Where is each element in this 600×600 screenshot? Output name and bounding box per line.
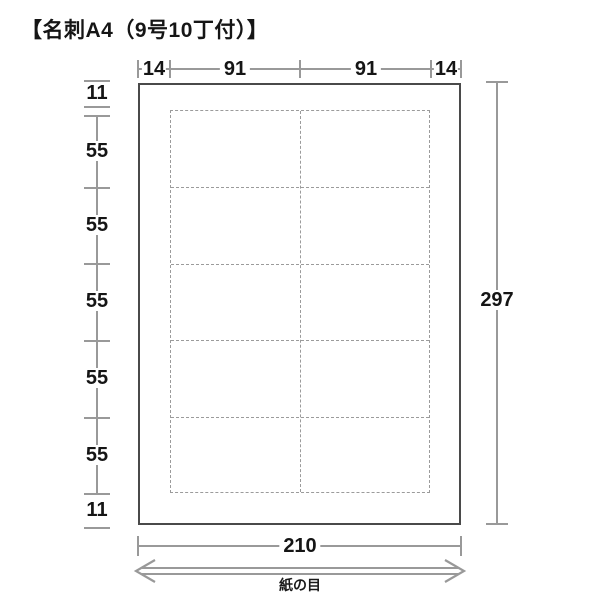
tick-mark (84, 106, 110, 108)
height-dimension-label: 297 (476, 290, 517, 310)
left-dimension-label: 11 (82, 500, 111, 520)
tick-mark (84, 527, 110, 529)
tick-mark (486, 523, 508, 525)
tick-mark (299, 60, 301, 78)
tick-mark (137, 536, 139, 556)
tick-mark (460, 60, 462, 78)
tick-mark (169, 60, 171, 78)
top-dimension-label: 91 (351, 59, 381, 79)
tick-mark (486, 81, 508, 83)
tick-mark (84, 417, 110, 419)
card-grid-center-cut-line (300, 111, 301, 492)
top-dimension-label: 14 (142, 59, 166, 79)
left-dimension-label: 55 (82, 445, 112, 465)
tick-mark (430, 60, 432, 78)
card-grid-row-cut-line (171, 340, 429, 341)
left-dimension-label: 55 (82, 141, 112, 161)
grain-direction-label: 紙の目 (279, 575, 321, 595)
left-dimension-label: 55 (82, 291, 112, 311)
card-grid (170, 110, 430, 493)
left-dimension-label: 55 (82, 215, 112, 235)
width-dimension-label: 210 (279, 536, 320, 556)
tick-mark (84, 493, 110, 495)
card-grid-row-cut-line (171, 264, 429, 265)
card-grid-row-cut-line (171, 417, 429, 418)
tick-mark (84, 187, 110, 189)
tick-mark (460, 536, 462, 556)
tick-mark (137, 60, 139, 78)
left-dimension-label: 55 (82, 368, 112, 388)
tick-mark (84, 263, 110, 265)
tick-mark (84, 340, 110, 342)
card-grid-row-cut-line (171, 187, 429, 188)
tick-mark (84, 115, 110, 117)
left-dimension-label: 11 (82, 83, 111, 103)
page-title: 【名刺A4（9号10丁付）】 (21, 14, 268, 44)
top-dimension-label: 14 (434, 59, 458, 79)
top-dimension-label: 91 (220, 59, 250, 79)
